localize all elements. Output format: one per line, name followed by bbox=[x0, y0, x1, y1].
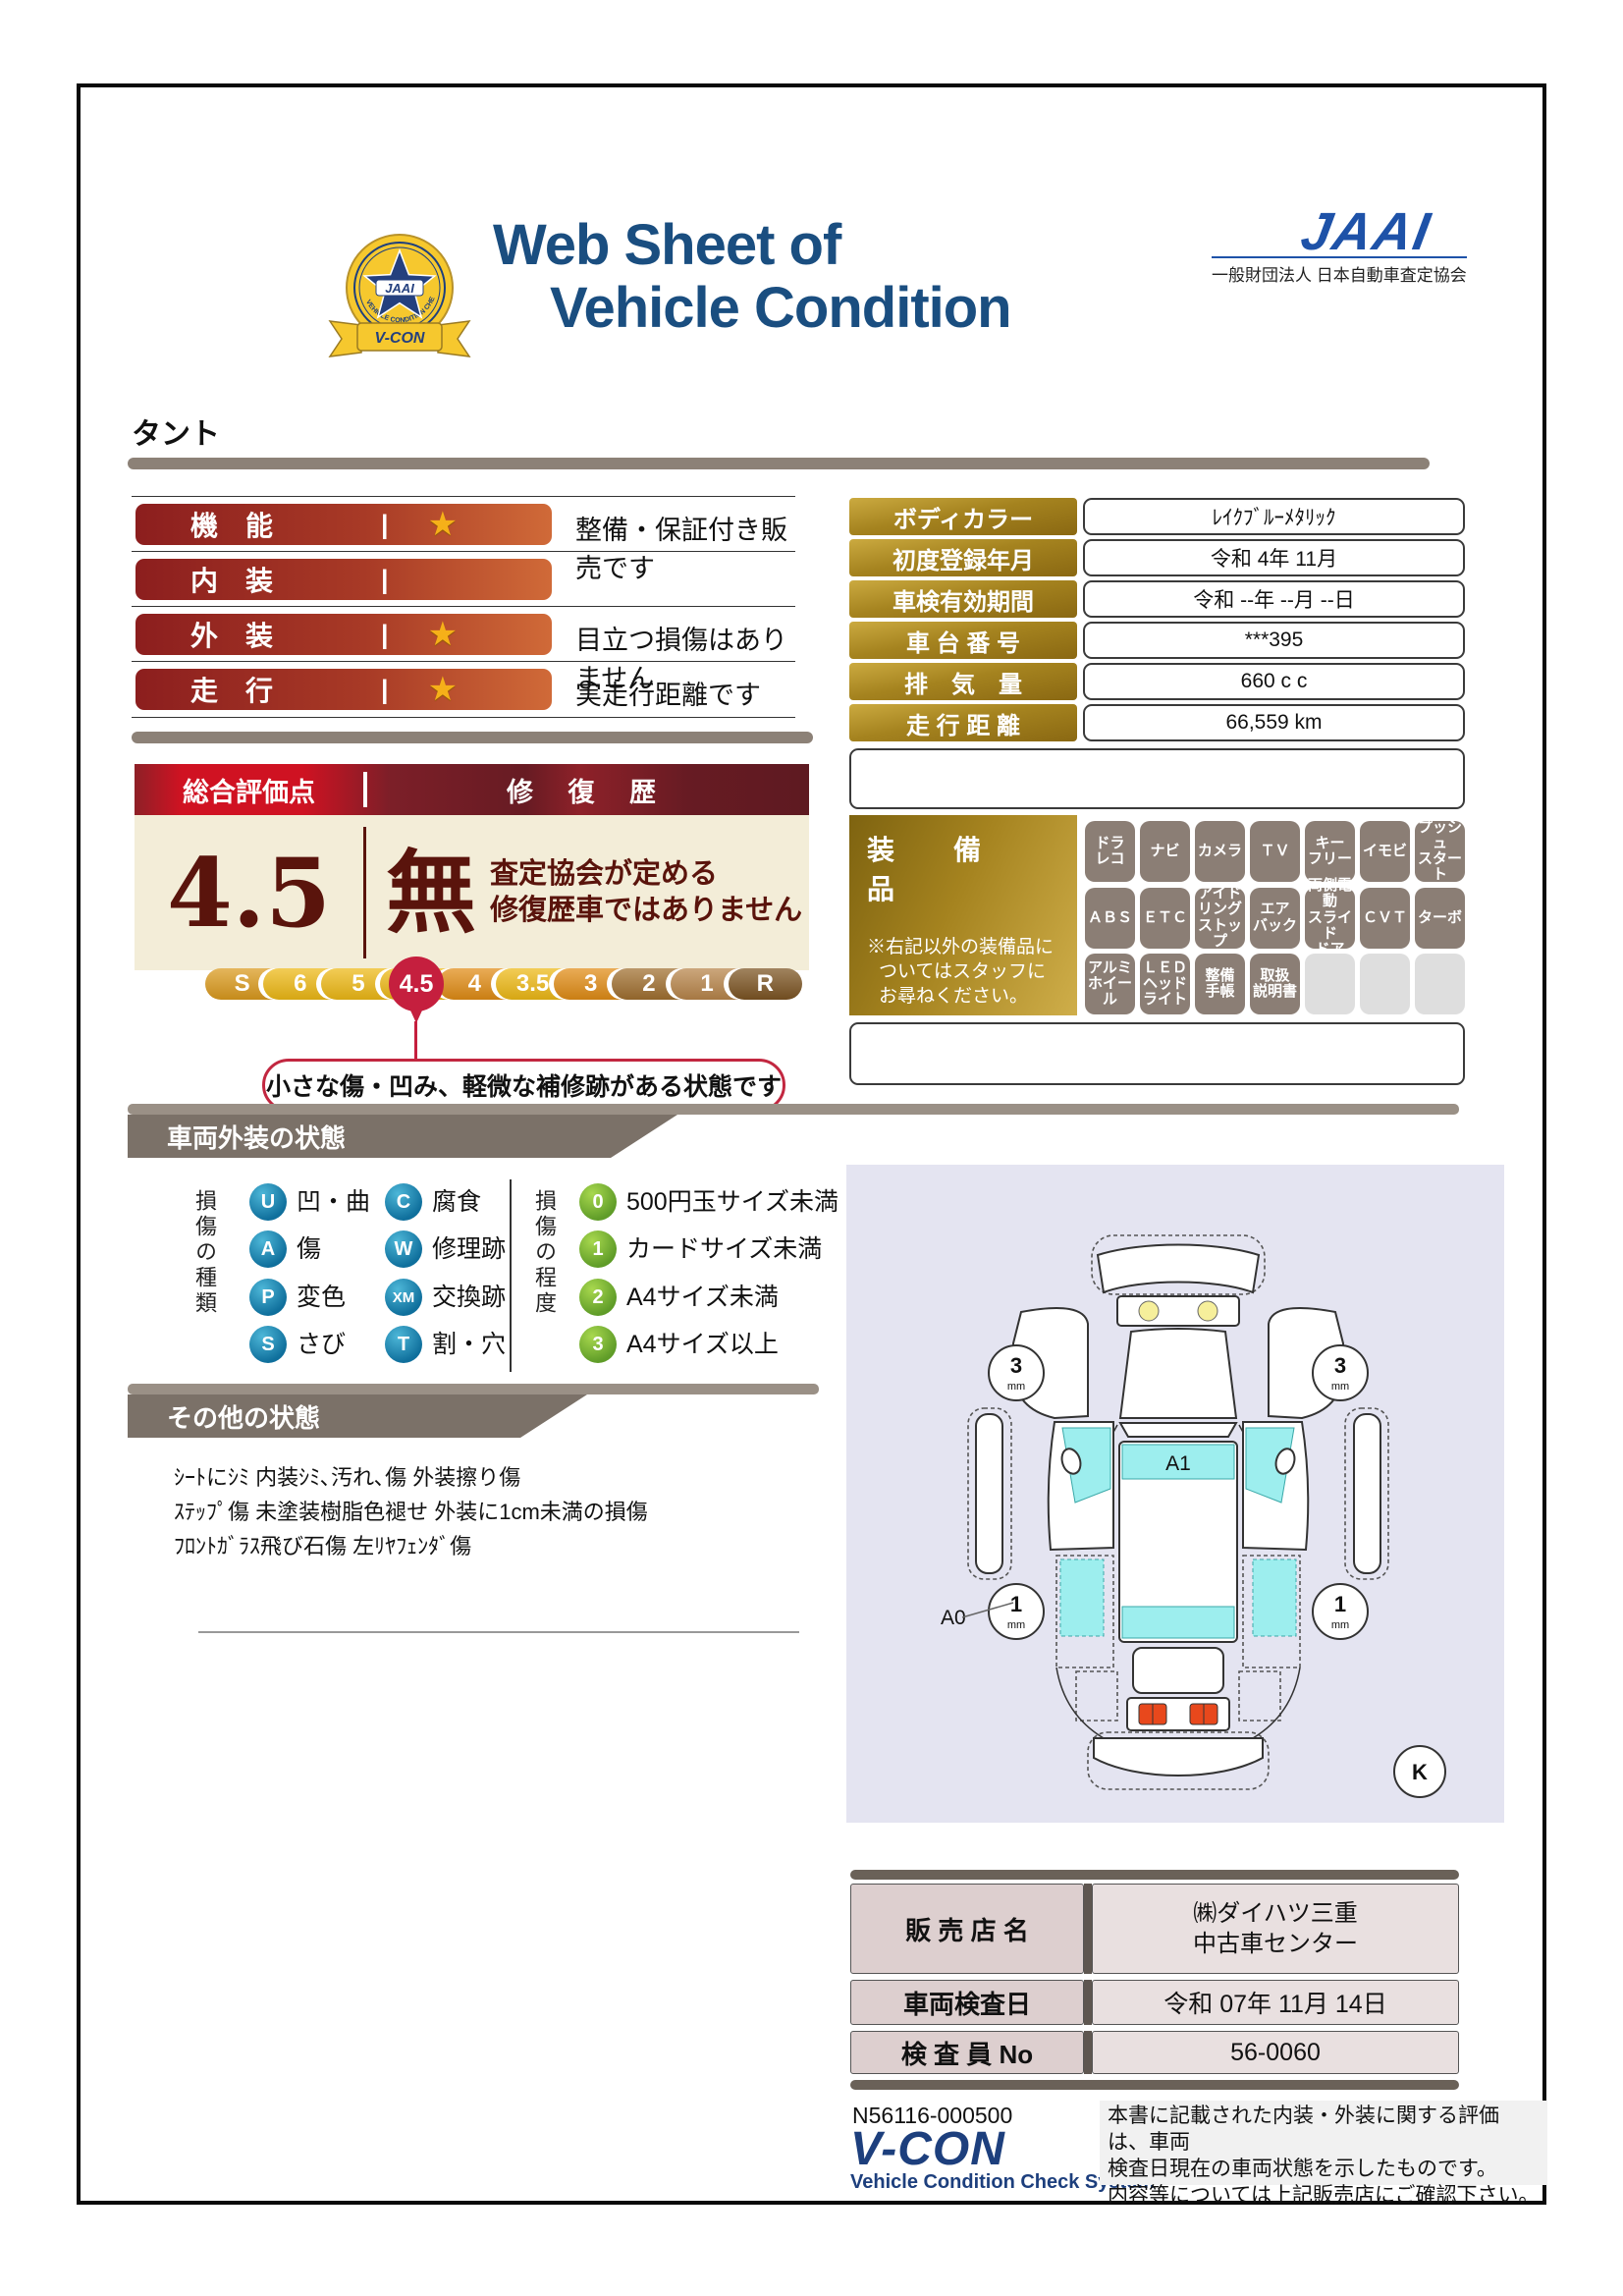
rating-separator: | bbox=[381, 620, 389, 650]
headlight-right-icon bbox=[1198, 1301, 1217, 1321]
table-row: ボディカラー ﾚｲｸﾌﾞﾙｰﾒﾀﾘｯｸ bbox=[849, 498, 1465, 535]
selected-grade-balloon: 4.5 bbox=[389, 957, 444, 1011]
damage-type-t-label: 割・穴 bbox=[432, 1326, 506, 1363]
equipment-badge-led: ＬＥＤ ヘッド ライト bbox=[1140, 954, 1190, 1014]
svg-text:mm: mm bbox=[1007, 1619, 1025, 1631]
info-value: ***395 bbox=[1083, 622, 1465, 659]
svg-text:mm: mm bbox=[1331, 1619, 1349, 1631]
selected-grade-value: 4.5 bbox=[400, 970, 434, 999]
tire-front-left: 3 mm bbox=[989, 1345, 1044, 1400]
table-row: 初度登録年月 令和 4年 11月 bbox=[849, 539, 1465, 576]
cowl bbox=[1120, 1423, 1236, 1437]
damage-type-w-label: 修理跡 bbox=[432, 1230, 506, 1268]
info-label: 車検有効期間 bbox=[849, 580, 1077, 618]
rating-label: 内 装 bbox=[190, 560, 338, 599]
equipment-badge-cvt: ＣＶＴ bbox=[1360, 888, 1410, 949]
equipment-badge-abs: ＡＢＳ bbox=[1085, 888, 1135, 949]
rating-rows: 機 能 | ★ 整備・保証付き販売です 内 装 | 外 装 | ★ 目立つ損傷は… bbox=[132, 496, 795, 718]
notes-empty-box bbox=[849, 748, 1465, 809]
vehicle-info-table: ボディカラー ﾚｲｸﾌﾞﾙｰﾒﾀﾘｯｸ 初度登録年月 令和 4年 11月 車検有… bbox=[849, 498, 1465, 753]
sheet-page: VEHICLE CONDITION CHECK SYSTEM JAAI V-CO… bbox=[77, 83, 1546, 2205]
equipment-badge-pushstart: プッシュ スタート bbox=[1415, 821, 1465, 882]
overall-score-header: 総合評価点 bbox=[135, 771, 363, 809]
damage-type-u-label: 凹・曲 bbox=[297, 1183, 370, 1221]
tailgate bbox=[1133, 1648, 1223, 1693]
rating-row-interior: 内 装 | bbox=[132, 551, 795, 607]
front-bumper bbox=[1098, 1245, 1259, 1293]
info-label: 車 台 番 号 bbox=[849, 622, 1077, 659]
equipment-badge-empty bbox=[1305, 954, 1355, 1014]
svg-text:1: 1 bbox=[1334, 1592, 1346, 1616]
sheet-canvas: VEHICLE CONDITION CHECK SYSTEM JAAI V-CO… bbox=[0, 0, 1623, 2296]
rating-row-mileage: 走 行 | ★ 実走行距離です bbox=[132, 661, 795, 718]
svg-text:mm: mm bbox=[1331, 1381, 1349, 1393]
equipment-badge-powerslide: 両側電動 スライド ドア bbox=[1305, 888, 1355, 949]
equipment-empty-box bbox=[849, 1022, 1465, 1085]
damage-degree-header: 損傷の程度 bbox=[528, 1189, 560, 1386]
rating-badge-exterior: 外 装 | ★ bbox=[135, 614, 552, 655]
headlight-left-icon bbox=[1139, 1301, 1159, 1321]
equipment-badge-idlingstop: アイド リング ストップ bbox=[1195, 888, 1245, 949]
info-value: 令和 4年 11月 bbox=[1083, 539, 1465, 576]
info-value: 令和 --年 --月 --日 bbox=[1083, 580, 1465, 618]
exterior-section-banner: 車両外装の状態 bbox=[128, 1115, 677, 1158]
damage-type-s-icon: S bbox=[249, 1326, 287, 1363]
damage-type-p-icon: P bbox=[249, 1279, 287, 1316]
damage-degree-2-icon: 2 bbox=[579, 1279, 617, 1316]
jaai-org-name: 一般財団法人 日本自動車査定協会 bbox=[1212, 256, 1467, 286]
tire-front-right: 3 mm bbox=[1313, 1345, 1368, 1400]
rating-badge-function: 機 能 | ★ bbox=[135, 504, 552, 545]
dealer-table-top-bar bbox=[850, 1870, 1459, 1880]
rating-badge-mileage: 走 行 | ★ bbox=[135, 669, 552, 710]
equipment-badge-immobi: イモビ bbox=[1360, 821, 1410, 882]
table-row: 排 気 量 660 c c bbox=[849, 663, 1465, 700]
repair-note: 査定協会が定める 修復歴車ではありません bbox=[490, 856, 802, 929]
rear-glass bbox=[1122, 1607, 1234, 1638]
star-icon: ★ bbox=[428, 615, 467, 654]
damage-type-w-icon: W bbox=[385, 1230, 422, 1268]
equipment-badge-empty bbox=[1415, 954, 1465, 1014]
rear-quarter-left-outline bbox=[1076, 1671, 1117, 1721]
equipment-badge-navi: ナビ bbox=[1140, 821, 1190, 882]
k-mark-label: K bbox=[1412, 1760, 1428, 1784]
car-diagram-panel: A1 bbox=[846, 1165, 1504, 1823]
equipment-badge-airbag: エア バック bbox=[1250, 888, 1300, 949]
star-icon: ★ bbox=[428, 505, 467, 544]
dealer-row-divider bbox=[1084, 1980, 1092, 2025]
equipment-badge-keyfree: キー フリー bbox=[1305, 821, 1355, 882]
disclaimer-line2: 検査日現在の車両状態を示したものです。 bbox=[1108, 2156, 1540, 2182]
rating-badge-interior: 内 装 | bbox=[135, 559, 552, 600]
equipment-badge-tv: ＴＶ bbox=[1250, 821, 1300, 882]
rating-separator: | bbox=[381, 510, 389, 540]
dealer-name-row: 販 売 店 名 ㈱ダイハツ三重 中古車センター bbox=[850, 1884, 1459, 1974]
evaluation-header: 総合評価点 修 復 歴 bbox=[135, 764, 809, 815]
inspection-date-row: 車両検査日 令和 07年 11月 14日 bbox=[850, 1980, 1459, 2025]
vcon-emblem-icon: VEHICLE CONDITION CHECK SYSTEM JAAI V-CO… bbox=[304, 231, 496, 363]
vehicle-name: タント bbox=[132, 410, 220, 453]
equipment-badge-alloywheel: アルミ ホイール bbox=[1085, 954, 1135, 1014]
info-label: 初度登録年月 bbox=[849, 539, 1077, 576]
dealer-row-divider bbox=[1084, 1884, 1092, 1974]
equipment-note: ※右記以外の装備品に ついてはスタッフに お尋ねください。 bbox=[867, 935, 1077, 1009]
vcon-logo: V-CON bbox=[850, 2122, 1005, 2176]
inspector-no-label: 検 査 員 No bbox=[850, 2031, 1084, 2074]
disclaimer-line1: 本書に記載された内装・外装に関する評価は、車両 bbox=[1108, 2103, 1540, 2156]
other-condition-text: ｼｰﾄにｼﾐ 内装ｼﾐ､汚れ､傷 外装擦り傷 ｽﾃｯﾌﾟ傷 未塗装樹脂色褪せ 外… bbox=[174, 1460, 802, 1563]
dealer-name-value: ㈱ダイハツ三重 中古車センター bbox=[1092, 1884, 1459, 1974]
dealer-table-bottom-bar bbox=[850, 2080, 1459, 2090]
rear-bumper bbox=[1094, 1738, 1263, 1776]
equipment-note-line2: ついてはスタッフに bbox=[867, 959, 1077, 984]
exterior-section-bar bbox=[128, 1104, 1459, 1115]
info-label: 排 気 量 bbox=[849, 663, 1077, 700]
equipment-badge-etc: ＥＴＣ bbox=[1140, 888, 1190, 949]
equipment-section: 装 備 品 ※右記以外の装備品に ついてはスタッフに お尋ねください。 ドラ レ… bbox=[849, 815, 1465, 1015]
svg-text:3: 3 bbox=[1010, 1353, 1022, 1378]
svg-text:1: 1 bbox=[1010, 1592, 1022, 1616]
equipment-badge-manual: 取扱 説明書 bbox=[1250, 954, 1300, 1014]
dealer-row-divider bbox=[1084, 2031, 1092, 2074]
overall-score-value: 4.5 bbox=[135, 815, 363, 970]
damage-type-u-icon: U bbox=[249, 1183, 287, 1221]
damage-type-c-icon: C bbox=[385, 1183, 422, 1221]
emblem-vcon-label: V-CON bbox=[375, 330, 425, 347]
damage-type-p-label: 変色 bbox=[297, 1279, 346, 1316]
info-value: ﾚｲｸﾌﾞﾙｰﾒﾀﾘｯｸ bbox=[1083, 498, 1465, 535]
info-label: 走 行 距 離 bbox=[849, 704, 1077, 741]
rear-door-left-window bbox=[1060, 1559, 1104, 1636]
damage-degree-3-label: A4サイズ以上 bbox=[626, 1326, 779, 1363]
damage-degree-2-label: A4サイズ未満 bbox=[626, 1279, 779, 1316]
damage-type-a-label: 傷 bbox=[297, 1230, 321, 1268]
rating-separator: | bbox=[381, 675, 389, 705]
repair-note-line1: 査定協会が定める bbox=[490, 856, 802, 893]
info-value: 66,559 km bbox=[1083, 704, 1465, 741]
dealer-name-label: 販 売 店 名 bbox=[850, 1884, 1084, 1974]
info-value: 660 c c bbox=[1083, 663, 1465, 700]
repair-history-header: 修 復 歴 bbox=[367, 771, 809, 809]
diagram-a1-label: A1 bbox=[1165, 1452, 1191, 1475]
grade-scale: S 6 5 4.5 4 3.5 3 2 1 R 4.5 小さな傷・凹み、軽微な補… bbox=[135, 957, 809, 1207]
balloon-connector bbox=[414, 1021, 417, 1059]
scale-seg-r: R bbox=[729, 968, 802, 1000]
evaluation-body: 4.5 無 査定協会が定める 修復歴車ではありません bbox=[135, 815, 809, 970]
other-section-bar bbox=[128, 1384, 819, 1394]
rating-label: 機 能 bbox=[190, 505, 338, 544]
left-divider-bar bbox=[132, 732, 813, 743]
rating-comment: 実走行距離です bbox=[575, 674, 761, 712]
equipment-title-panel: 装 備 品 ※右記以外の装備品に ついてはスタッフに お尋ねください。 bbox=[849, 815, 1077, 1015]
equipment-badge-turbo: ターボ bbox=[1415, 888, 1465, 949]
damage-degree-0-icon: 0 bbox=[579, 1183, 617, 1221]
footer-disclaimer: 本書に記載された内装・外装に関する評価は、車両 検査日現在の車両状態を示したもの… bbox=[1100, 2101, 1547, 2185]
tire-rear-right: 1 mm bbox=[1313, 1584, 1368, 1639]
info-label: ボディカラー bbox=[849, 498, 1077, 535]
inspection-date-value: 令和 07年 11月 14日 bbox=[1092, 1980, 1459, 2025]
rear-quarter-right-outline bbox=[1239, 1671, 1280, 1721]
equipment-badge-grid: ドラ レコ ナビ カメラ ＴＶ キー フリー イモビ プッシュ スタート ＡＢＳ… bbox=[1085, 815, 1465, 1015]
other-condition-line2: ｽﾃｯﾌﾟ傷 未塗装樹脂色褪せ 外装に1cm未満の損傷 bbox=[174, 1495, 802, 1529]
damage-type-xm-label: 交換跡 bbox=[432, 1279, 506, 1316]
rating-row-exterior: 外 装 | ★ 目立つ損傷はありません bbox=[132, 606, 795, 662]
damage-type-xm-icon: XM bbox=[385, 1279, 422, 1316]
equipment-badge-dorareco: ドラ レコ bbox=[1085, 821, 1135, 882]
repair-note-line2: 修復歴車ではありません bbox=[490, 893, 802, 929]
inspector-no-value: 56-0060 bbox=[1092, 2031, 1459, 2074]
damage-type-a-icon: A bbox=[249, 1230, 287, 1268]
side-sill-right bbox=[1354, 1414, 1380, 1573]
table-row: 車 台 番 号 ***395 bbox=[849, 622, 1465, 659]
other-section-banner: その他の状態 bbox=[128, 1394, 587, 1438]
dealer-name-line1: ㈱ダイハツ三重 bbox=[1193, 1898, 1358, 1929]
damage-degree-1-label: カードサイズ未満 bbox=[626, 1230, 822, 1268]
sheet-title-line2: Vehicle Condition bbox=[550, 278, 1011, 339]
damage-degree-0-label: 500円玉サイズ未満 bbox=[626, 1183, 839, 1221]
repair-flag-value: 無 bbox=[386, 847, 476, 938]
emblem-jaai-label: JAAI bbox=[385, 281, 414, 296]
damage-degree-1-icon: 1 bbox=[579, 1230, 617, 1268]
rating-separator: | bbox=[381, 565, 389, 595]
other-section-underline bbox=[198, 1631, 799, 1633]
damage-type-s-label: さび bbox=[297, 1326, 346, 1363]
svg-text:3: 3 bbox=[1334, 1353, 1346, 1378]
jaai-logo: JAAI bbox=[1297, 201, 1436, 262]
grade-scale-bar: S 6 5 4.5 4 3.5 3 2 1 R bbox=[205, 968, 802, 1000]
damage-type-c-label: 腐食 bbox=[432, 1183, 481, 1221]
sheet-title-line1: Web Sheet of bbox=[493, 215, 840, 276]
header-divider-bar bbox=[128, 458, 1430, 469]
svg-text:mm: mm bbox=[1007, 1381, 1025, 1393]
star-icon: ★ bbox=[428, 670, 467, 709]
equipment-note-line1: ※右記以外の装備品に bbox=[867, 935, 1077, 959]
table-row: 走 行 距 離 66,559 km bbox=[849, 704, 1465, 741]
equipment-badge-servicebook: 整備 手帳 bbox=[1195, 954, 1245, 1014]
damage-type-header: 損傷の種類 bbox=[189, 1189, 220, 1386]
rear-door-right-window bbox=[1253, 1559, 1296, 1636]
legend-divider bbox=[510, 1179, 512, 1372]
inspection-date-label: 車両検査日 bbox=[850, 1980, 1084, 2025]
diagram-a0-label: A0 bbox=[941, 1607, 966, 1629]
dealer-name-line2: 中古車センター bbox=[1193, 1929, 1358, 1959]
bonnet bbox=[1120, 1329, 1236, 1418]
damage-type-t-icon: T bbox=[385, 1326, 422, 1363]
equipment-title: 装 備 品 bbox=[867, 829, 1077, 907]
other-condition-line3: ﾌﾛﾝﾄｶﾞﾗｽ飛び石傷 左ﾘﾔﾌｪﾝﾀﾞ傷 bbox=[174, 1529, 802, 1563]
equipment-note-line3: お尋ねください。 bbox=[867, 984, 1077, 1009]
equipment-badge-camera: カメラ bbox=[1195, 821, 1245, 882]
equipment-badge-empty bbox=[1360, 954, 1410, 1014]
damage-degree-3-icon: 3 bbox=[579, 1326, 617, 1363]
front-panel bbox=[1117, 1296, 1239, 1326]
evaluation-box: 総合評価点 修 復 歴 4.5 無 査定協会が定める 修復歴車ではありません bbox=[135, 764, 809, 970]
rating-row-function: 機 能 | ★ 整備・保証付き販売です bbox=[132, 496, 795, 552]
rating-label: 外 装 bbox=[190, 615, 338, 654]
inspector-no-row: 検 査 員 No 56-0060 bbox=[850, 2031, 1459, 2074]
rating-label: 走 行 bbox=[190, 670, 338, 709]
car-exploded-diagram: A1 bbox=[846, 1165, 1504, 1823]
side-sill-left bbox=[976, 1414, 1002, 1573]
disclaimer-line3: 内容等については上記販売店にご確認下さい。 bbox=[1108, 2182, 1540, 2209]
other-condition-line1: ｼｰﾄにｼﾐ 内装ｼﾐ､汚れ､傷 外装擦り傷 bbox=[174, 1460, 802, 1495]
table-row: 車検有効期間 令和 --年 --月 --日 bbox=[849, 580, 1465, 618]
tire-rear-left: 1 mm bbox=[989, 1584, 1044, 1639]
